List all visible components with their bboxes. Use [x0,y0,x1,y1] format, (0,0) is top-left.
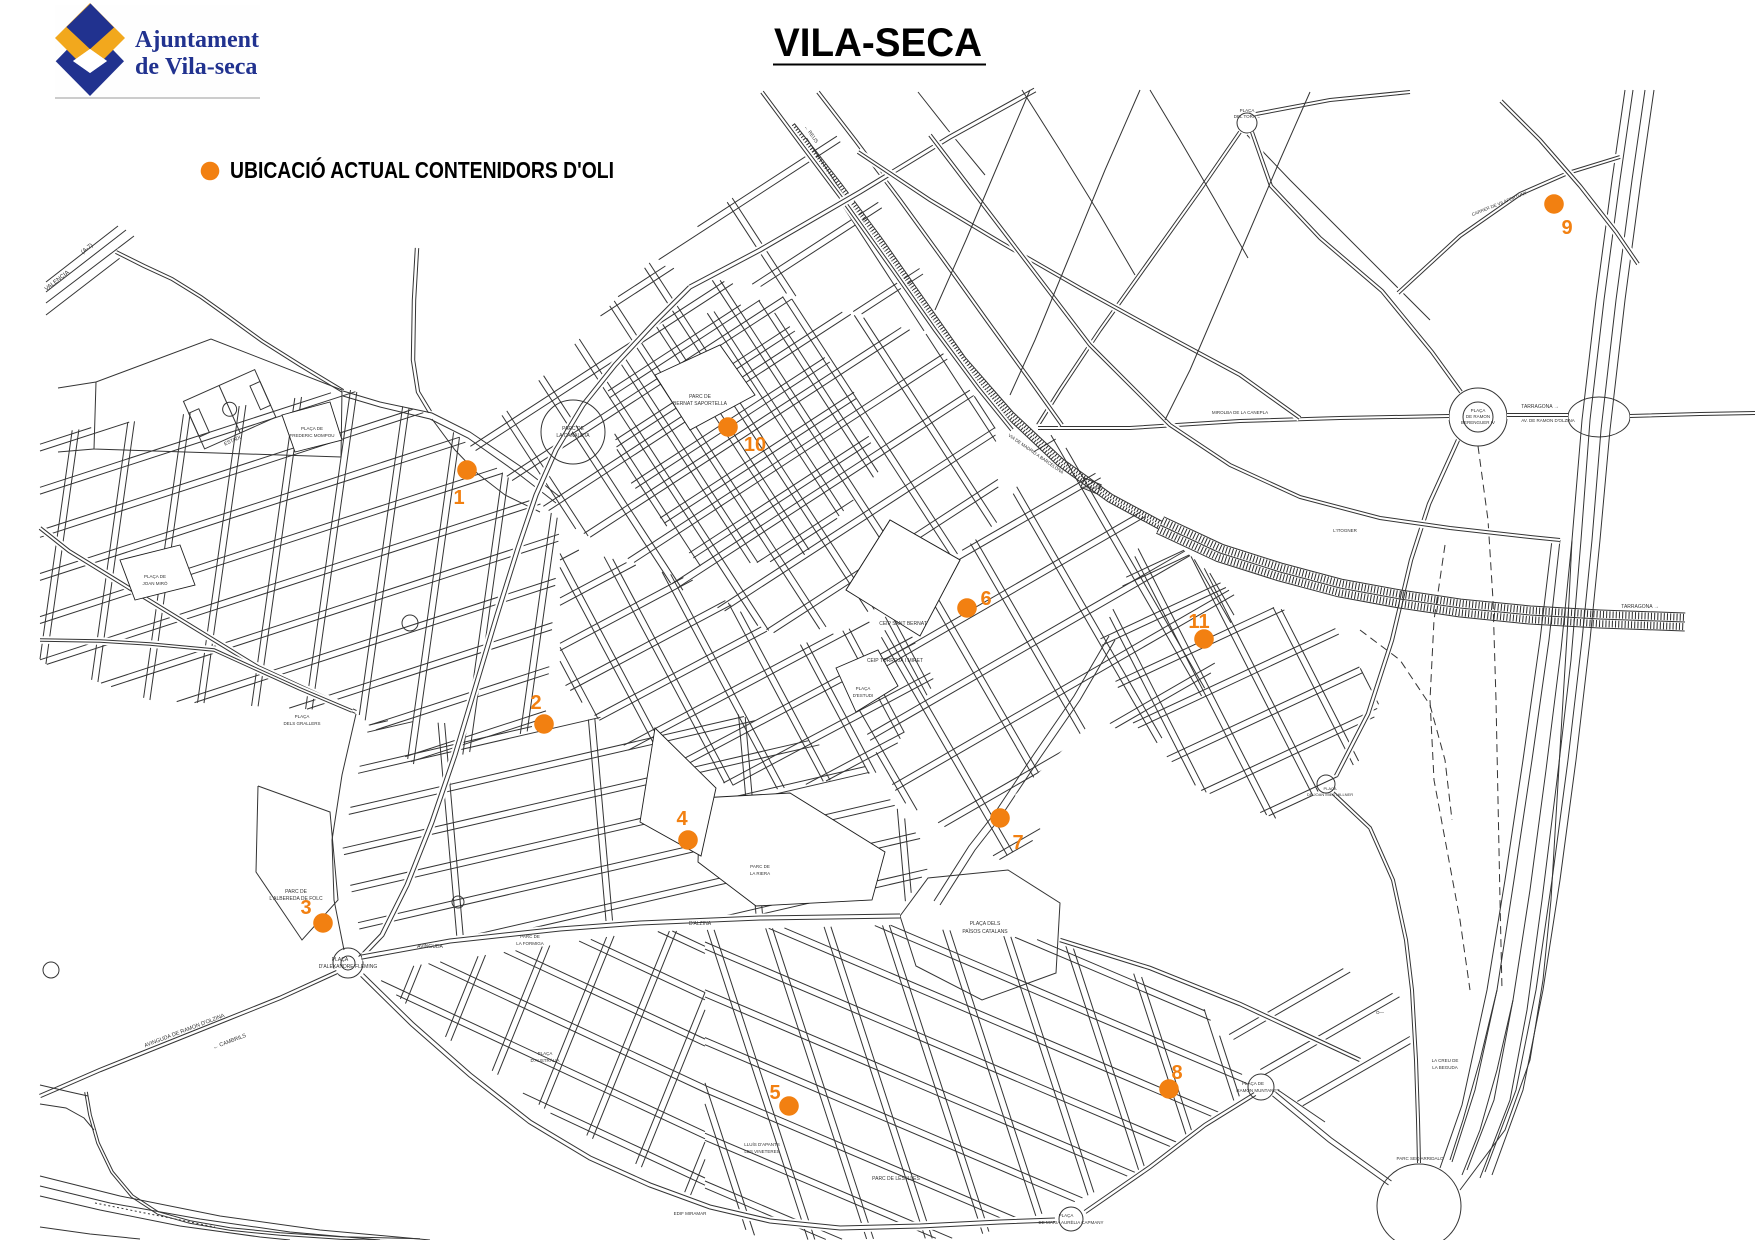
svg-text:PLAÇA DE: PLAÇA DE [301,426,323,431]
svg-text:JOAN MIRÓ: JOAN MIRÓ [142,580,168,586]
svg-text:9: 9 [1561,217,1572,239]
svg-text:6: 6 [980,588,991,610]
svg-text:CEIP SANT BERNAT: CEIP SANT BERNAT [879,621,927,627]
svg-text:PARC DE LES ILLES: PARC DE LES ILLES [872,1176,920,1182]
svg-text:PLAÇA: PLAÇA [538,1051,553,1056]
svg-text:PARC SEQ ARRIDALO: PARC SEQ ARRIDALO [1397,1156,1444,1161]
svg-text:PLAÇA: PLAÇA [1323,786,1336,791]
svg-text:EDIF MIRAMAR: EDIF MIRAMAR [674,1211,708,1216]
svg-text:PLAÇA: PLAÇA [1059,1213,1074,1218]
svg-text:3: 3 [300,897,311,919]
svg-text:AVINGUDA: AVINGUDA [417,944,443,950]
svg-text:TARRAGONA →: TARRAGONA → [1621,604,1658,610]
svg-text:TARRAGONA →: TARRAGONA → [1521,404,1558,410]
svg-text:AV. DE RAMON D'OLZINA: AV. DE RAMON D'OLZINA [1521,418,1575,423]
svg-text:PLAÇA DELS: PLAÇA DELS [970,921,1001,927]
svg-text:RAMON MUNTANER: RAMON MUNTANER [1236,1088,1280,1093]
svg-text:2: 2 [530,692,541,714]
svg-text:LA RIERA: LA RIERA [750,871,770,876]
svg-text:DE JOAN MIES HILLNER: DE JOAN MIES HILLNER [1307,792,1353,797]
svg-text:LA BEGUDA: LA BEGUDA [1432,1065,1458,1070]
svg-text:BERENGUER IV: BERENGUER IV [1461,420,1495,425]
svg-text:BERNAT SAPORTELLA: BERNAT SAPORTELLA [673,401,728,407]
svg-text:UBICACIÓ ACTUAL CONTENIDORS D': UBICACIÓ ACTUAL CONTENIDORS D'OLI [230,156,614,183]
svg-text:LA FORMIGA: LA FORMIGA [516,941,544,946]
svg-text:11: 11 [1188,611,1209,633]
svg-text:PARC DE: PARC DE [750,864,770,869]
svg-text:O—: O— [1376,1010,1385,1015]
svg-text:10: 10 [744,434,766,456]
svg-text:PARC DE: PARC DE [285,889,308,895]
svg-text:PARC DE: PARC DE [689,394,712,400]
svg-text:PLAÇA: PLAÇA [1471,408,1486,413]
svg-text:1: 1 [453,487,464,509]
svg-text:PLAÇA: PLAÇA [856,686,871,691]
svg-text:D'ALZINA: D'ALZINA [689,921,712,927]
svg-text:PLAÇA DE: PLAÇA DE [144,574,166,579]
svg-text:DE RAMON: DE RAMON [1466,414,1490,419]
svg-text:LA CANALETA: LA CANALETA [556,433,590,439]
svg-text:PARC DE: PARC DE [520,934,540,939]
svg-text:PLAÇA: PLAÇA [295,714,310,719]
svg-text:DE MARIA AURÈLIA CAPMANY: DE MARIA AURÈLIA CAPMANY [1038,1219,1103,1225]
svg-text:FREDERIC MOMPOU: FREDERIC MOMPOU [290,433,335,438]
svg-text:8: 8 [1171,1062,1182,1084]
svg-text:Ajuntament: Ajuntament [135,27,259,53]
svg-text:VILA-SECA: VILA-SECA [774,21,982,65]
svg-text:L'ITOGNER: L'ITOGNER [1333,528,1358,533]
svg-text:5: 5 [769,1082,780,1104]
svg-text:CEIP TORROJA I MIRET: CEIP TORROJA I MIRET [867,658,923,664]
svg-text:D'ALEXANDRE FLEMING: D'ALEXANDRE FLEMING [319,964,378,970]
svg-text:LA CREU DE: LA CREU DE [1432,1058,1459,1063]
svg-text:D'AUSTRÀLIA: D'AUSTRÀLIA [530,1057,559,1063]
svg-text:PLAÇA: PLAÇA [1240,108,1255,113]
svg-text:PLAÇA DE: PLAÇA DE [1242,1081,1264,1086]
svg-text:PAÏSOS CATALANS: PAÏSOS CATALANS [962,928,1008,935]
svg-text:4: 4 [676,808,688,830]
svg-text:PLAÇA: PLAÇA [332,957,349,963]
svg-text:DELS GRALLERS: DELS GRALLERS [283,721,320,726]
svg-text:LES VINETERES: LES VINETERES [744,1149,779,1154]
svg-text:D'ESTUDI: D'ESTUDI [853,693,874,698]
svg-text:L'ALBEREDA DE FOLC: L'ALBEREDA DE FOLC [269,896,323,902]
svg-text:ESTACIÓ: ESTACIÓ [1082,485,1099,490]
svg-text:de Vila-seca: de Vila-seca [135,54,257,80]
svg-text:MIROLBA DE LA CANEPLA: MIROLBA DE LA CANEPLA [1212,410,1268,415]
svg-text:7: 7 [1012,832,1023,854]
svg-text:LLUÍS D'APANTS: LLUÍS D'APANTS [744,1141,780,1147]
svg-text:PARC DE: PARC DE [562,426,585,432]
